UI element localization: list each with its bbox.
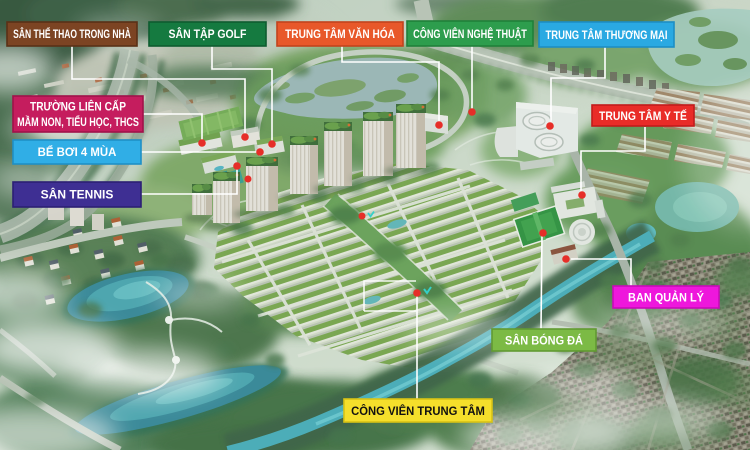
svg-text:BỂ BƠI 4 MÙA: BỂ BƠI 4 MÙA [38, 146, 117, 159]
svg-text:SÂN TENNIS: SÂN TENNIS [41, 187, 114, 202]
svg-text:SÂN TẬP GOLF: SÂN TẬP GOLF [169, 28, 247, 42]
svg-text:BAN QUẢN LÝ: BAN QUẢN LÝ [628, 291, 704, 305]
svg-text:MẦM NON, TIỂU HỌC, THCS: MẦM NON, TIỂU HỌC, THCS [17, 115, 139, 130]
svg-text:SÂN BÓNG ĐÁ: SÂN BÓNG ĐÁ [505, 334, 583, 348]
svg-text:CÔNG VIÊN TRUNG TÂM: CÔNG VIÊN TRUNG TÂM [351, 404, 485, 417]
svg-text:TRUNG TÂM THƯƠNG MẠI: TRUNG TÂM THƯƠNG MẠI [546, 28, 668, 42]
svg-text:SÂN THỂ THAO TRONG NHÀ: SÂN THỂ THAO TRONG NHÀ [13, 27, 131, 42]
svg-text:TRUNG TÂM VĂN HÓA: TRUNG TÂM VĂN HÓA [285, 27, 395, 41]
svg-text:CÔNG VIÊN NGHỆ THUẬT: CÔNG VIÊN NGHỆ THUẬT [413, 27, 527, 42]
svg-text:TRƯỜNG LIÊN CẤP: TRƯỜNG LIÊN CẤP [30, 100, 127, 114]
svg-text:TRUNG TÂM Y TẾ: TRUNG TÂM Y TẾ [599, 109, 687, 123]
